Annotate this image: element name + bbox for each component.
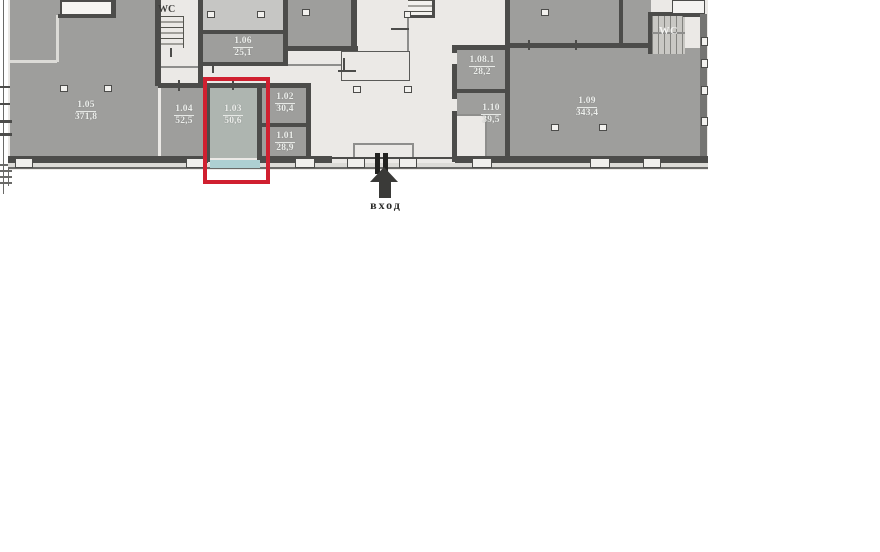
room-area: 39,5 [482,115,499,126]
room-unlabeled-top [203,0,283,31]
wall-thin [407,12,409,52]
wall-tick [528,40,530,50]
room-label-1-08-1: 1.08.1 28,2 [454,55,510,78]
wall-tick [0,176,12,178]
door-mark [302,9,310,16]
wall-tick [0,133,12,136]
window-mark [701,117,708,126]
room-1-05 [10,0,158,158]
wall-segment [198,0,203,88]
staircase-left [161,16,184,48]
wall-pier [15,158,33,168]
wall-segment [351,0,357,50]
room-number: 1.01 [275,131,294,143]
wall-pier [643,158,661,168]
room-number: 1.06 [233,36,252,48]
room-number: 1.10 [481,103,500,115]
wall-tick [0,170,12,172]
room-label-1-06: 1.06 25,1 [211,36,275,59]
room-unlabeled-right-top-2 [623,0,651,43]
door-mark [404,86,412,93]
entrance-label: вход [360,198,412,213]
wall-tick [178,80,180,91]
wall-pier [295,158,315,168]
room-area: 25,1 [234,48,251,59]
floor-plan-image: 1.05 371,8 WC 1.06 25,1 1 [0,0,880,552]
door-mark [60,85,68,92]
room-area: 30,4 [276,104,293,115]
window-mark [701,86,708,95]
room-area: 343,4 [576,108,598,119]
wall-segment [58,14,114,18]
wall-tick [0,86,10,88]
entrance-arrow-icon [370,167,398,182]
room-label-1-05: 1.05 371,8 [56,100,116,123]
wall-thin [10,60,57,63]
wall-tick [575,40,577,50]
door-opening [452,99,457,111]
wall-thin [158,66,198,68]
room-label-1-04: 1.04 52,5 [159,104,209,127]
outer-wall-line [3,0,4,160]
room-area: 28,9 [276,143,293,154]
wall-segment [455,89,508,93]
door-mark [404,11,411,18]
wall-tick [0,120,12,123]
door-mark [104,85,112,92]
wall-tick [391,28,409,30]
room-label-1-10: 1.10 39,5 [464,103,518,126]
wall-pier [347,158,365,168]
door-mark [599,124,607,131]
room-area: 52,5 [175,116,192,127]
wall-tick [0,182,12,184]
wall-pier [186,158,204,168]
room-number: 1.02 [275,92,294,104]
room-area: 371,8 [75,112,97,123]
room-area: 28,2 [473,67,490,78]
wc-right-label: WC [652,26,685,37]
door-mark [353,86,361,93]
facade-wall [455,156,708,163]
shaft-top-right [672,0,705,14]
wall-pier [399,158,417,168]
door-mark [207,11,215,18]
entrance-arrow-icon [379,182,391,198]
door-mark [541,9,549,16]
wc-left-label: WC [158,4,186,15]
wall-segment [198,30,288,34]
room-label-1-09: 1.09 343,4 [556,96,618,119]
staircase-lobby [408,0,435,18]
entrance-canopy [353,143,414,145]
window-mark [701,59,708,68]
wall-tick [338,70,356,72]
room-number: 1.08.1 [469,55,496,67]
wall-tick [343,58,345,70]
room-unlabeled-right-top [510,0,620,43]
wall-segment [505,0,510,162]
room-unlabeled-lobby [285,0,353,48]
wall-thin [283,64,345,66]
door-mark [257,11,265,18]
room-number: 1.04 [174,104,193,116]
door-mark [551,124,559,131]
room-number: 1.09 [577,96,596,108]
wall-segment [452,45,508,50]
wall-pier [472,158,492,168]
highlight-rectangle-room-1-03[interactable] [203,77,270,184]
wall-segment [111,0,116,18]
wall-tick [212,64,214,73]
wall-thin [56,15,59,62]
window-mark [701,37,708,46]
wall-tick [0,103,10,105]
wall-segment [285,46,358,51]
elevator-shaft [341,51,410,81]
wall-tick [170,48,172,57]
wall-pier [590,158,610,168]
room-number: 1.05 [76,100,95,112]
wall-segment [619,0,623,45]
facade-wall [8,156,208,163]
